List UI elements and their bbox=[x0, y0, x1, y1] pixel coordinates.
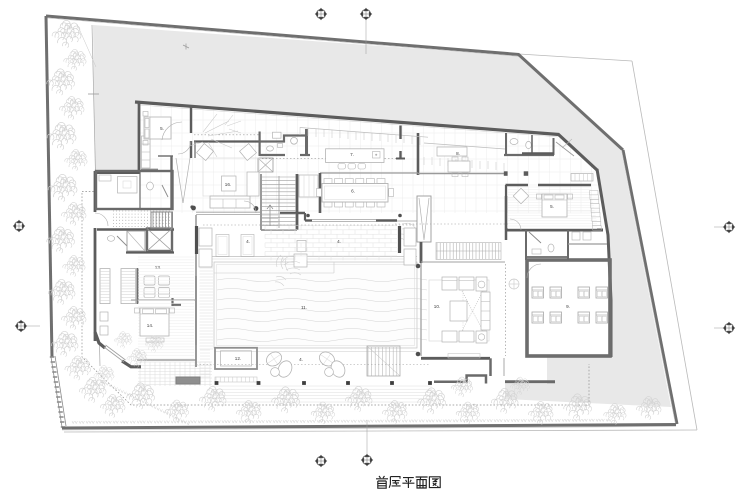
svg-text:4.: 4. bbox=[299, 357, 303, 362]
svg-text:9.: 9. bbox=[566, 304, 570, 309]
svg-text:5.: 5. bbox=[550, 204, 554, 209]
svg-text:4.: 4. bbox=[337, 239, 341, 244]
svg-text:4.: 4. bbox=[246, 239, 250, 244]
svg-text:12.: 12. bbox=[235, 356, 241, 361]
svg-text:8.: 8. bbox=[456, 151, 460, 156]
svg-text:14.: 14. bbox=[147, 323, 153, 328]
svg-text:11.: 11. bbox=[301, 305, 307, 310]
svg-text:5.: 5. bbox=[160, 126, 164, 131]
svg-text:16.: 16. bbox=[225, 182, 231, 187]
svg-text:10.: 10. bbox=[434, 304, 440, 309]
svg-text:7.: 7. bbox=[350, 152, 354, 157]
svg-text:6.: 6. bbox=[351, 189, 355, 194]
